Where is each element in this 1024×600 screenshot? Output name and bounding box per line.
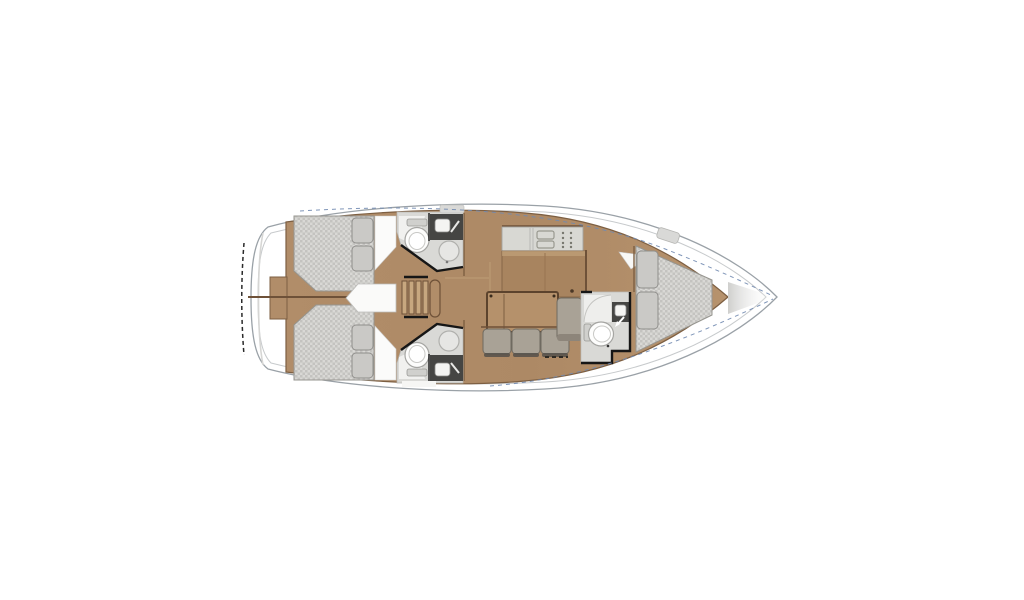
- pillow-icon: [352, 325, 373, 350]
- salon-table-icon: [487, 292, 558, 332]
- entry-pad-white: [402, 381, 436, 387]
- pillow-icon: [352, 246, 373, 271]
- toilet-icon: [405, 343, 429, 377]
- shower-circle-icon: [439, 331, 459, 351]
- yacht-layout-diagram: [0, 0, 1024, 600]
- sofa-cushion-icon: [483, 329, 511, 354]
- pillow-icon: [352, 218, 373, 243]
- cabinet-knob: [570, 289, 574, 293]
- salon: [481, 292, 582, 357]
- drain-dot: [446, 261, 449, 264]
- drain-dot: [607, 345, 610, 348]
- pillow-icon: [637, 251, 658, 288]
- sink-basin-icon: [430, 355, 463, 381]
- pillow-icon: [352, 353, 373, 378]
- sofa-cushion-icon: [512, 329, 540, 354]
- end-seat-cushion: [557, 298, 582, 340]
- pillow-icon: [637, 292, 658, 329]
- transom-dashed-edge: [242, 243, 244, 355]
- floor-plan-canvas: [0, 0, 1024, 600]
- deck-hatch-icon: [440, 205, 464, 213]
- toilet-icon: [405, 219, 429, 253]
- sink-basin-icon: [430, 214, 463, 240]
- shower-circle-icon: [439, 241, 459, 261]
